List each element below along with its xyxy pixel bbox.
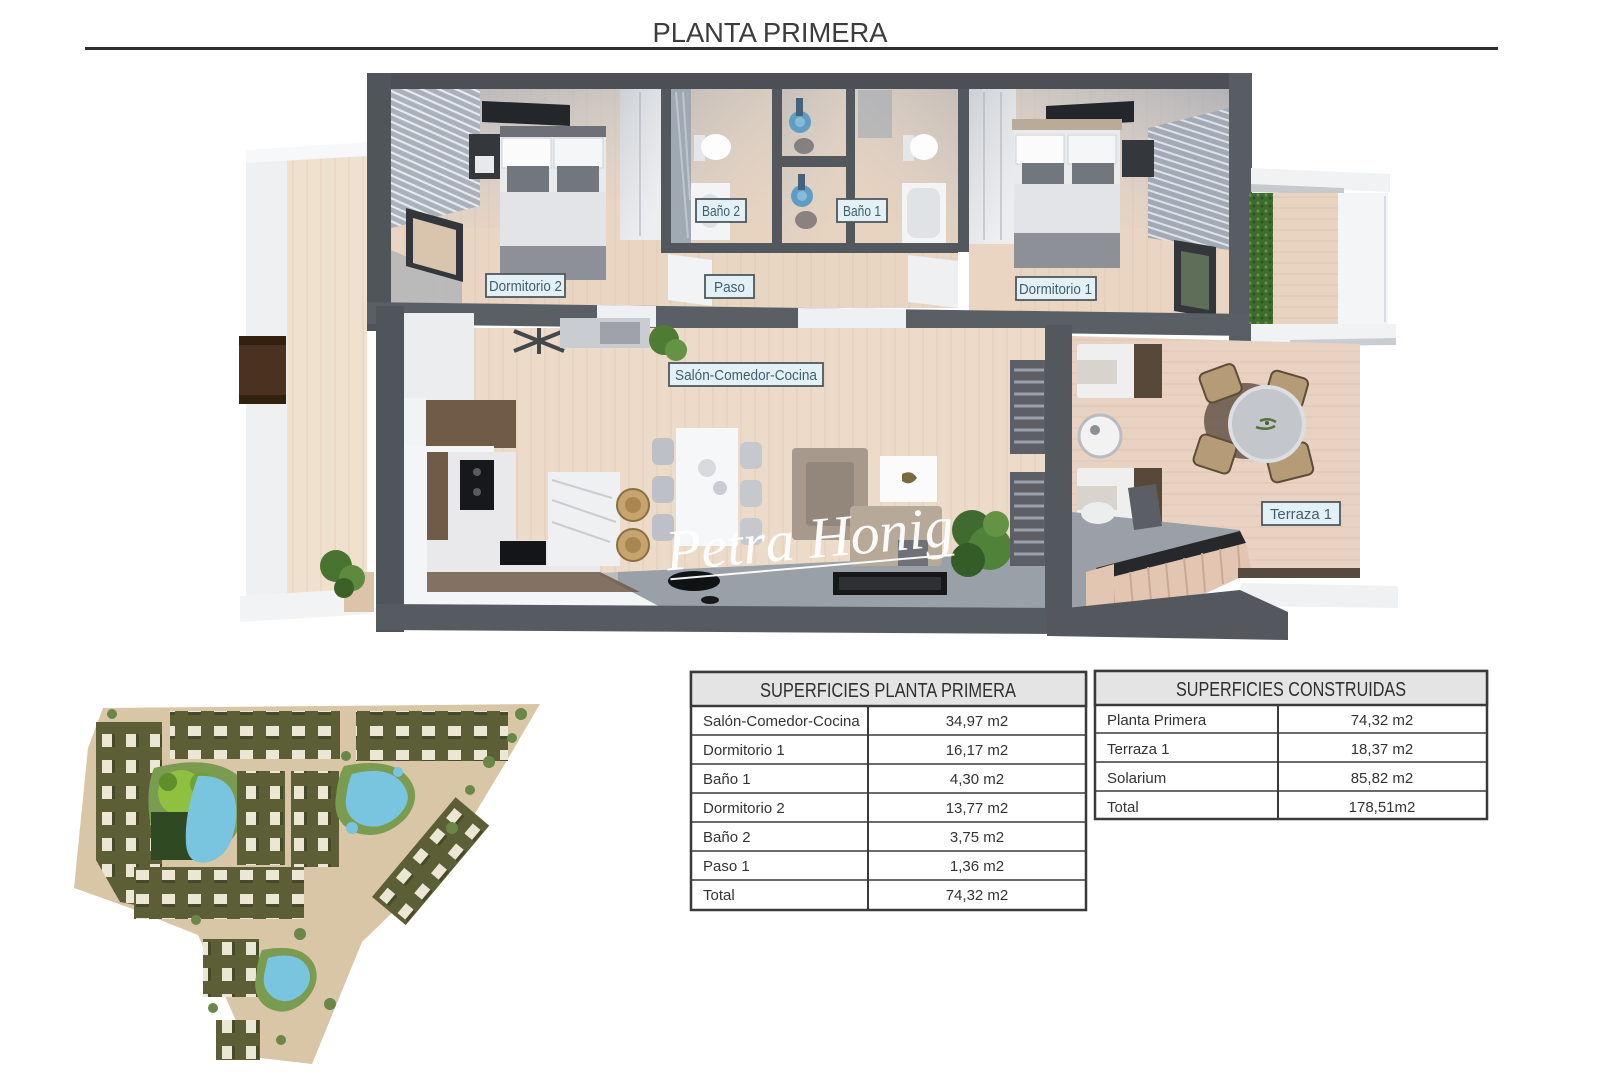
svg-text:13,77 m2: 13,77 m2 [946, 800, 1009, 817]
svg-text:Baño 1: Baño 1 [703, 771, 751, 788]
svg-text:16,17 m2: 16,17 m2 [946, 742, 1009, 759]
svg-text:Dormitorio 1: Dormitorio 1 [1019, 281, 1092, 298]
svg-text:Terraza 1: Terraza 1 [1107, 741, 1170, 758]
svg-text:4,30 m2: 4,30 m2 [950, 771, 1004, 788]
svg-text:85,82 m2: 85,82 m2 [1351, 770, 1414, 787]
svg-text:Dormitorio 2: Dormitorio 2 [489, 278, 562, 295]
svg-text:Salón-Comedor-Cocina: Salón-Comedor-Cocina [703, 713, 860, 730]
svg-text:Paso: Paso [714, 279, 745, 296]
svg-text:34,97 m2: 34,97 m2 [946, 713, 1009, 730]
svg-text:Paso 1: Paso 1 [703, 858, 750, 875]
svg-text:Baño 2: Baño 2 [702, 203, 740, 220]
svg-text:3,75 m2: 3,75 m2 [950, 829, 1004, 846]
svg-text:Total: Total [1107, 799, 1139, 816]
svg-text:Dormitorio 1: Dormitorio 1 [703, 742, 785, 759]
svg-text:SUPERFICIES CONSTRUIDAS: SUPERFICIES CONSTRUIDAS [1176, 679, 1406, 701]
svg-text:18,37 m2: 18,37 m2 [1351, 741, 1414, 758]
svg-text:74,32 m2: 74,32 m2 [1351, 712, 1414, 729]
svg-text:178,51m2: 178,51m2 [1349, 799, 1416, 816]
svg-text:Terraza 1: Terraza 1 [1270, 506, 1332, 523]
svg-text:PLANTA PRIMERA: PLANTA PRIMERA [653, 17, 888, 48]
svg-text:Solarium: Solarium [1107, 770, 1166, 787]
svg-text:SUPERFICIES PLANTA PRIMERA: SUPERFICIES PLANTA PRIMERA [760, 680, 1017, 702]
svg-text:1,36 m2: 1,36 m2 [950, 858, 1004, 875]
svg-text:Planta Primera: Planta Primera [1107, 712, 1207, 729]
svg-text:74,32 m2: 74,32 m2 [946, 887, 1009, 904]
svg-text:Total: Total [703, 887, 735, 904]
svg-text:Salón-Comedor-Cocina: Salón-Comedor-Cocina [675, 367, 818, 384]
svg-text:Baño 2: Baño 2 [703, 829, 751, 846]
svg-text:Baño 1: Baño 1 [843, 203, 881, 220]
svg-text:Dormitorio 2: Dormitorio 2 [703, 800, 785, 817]
